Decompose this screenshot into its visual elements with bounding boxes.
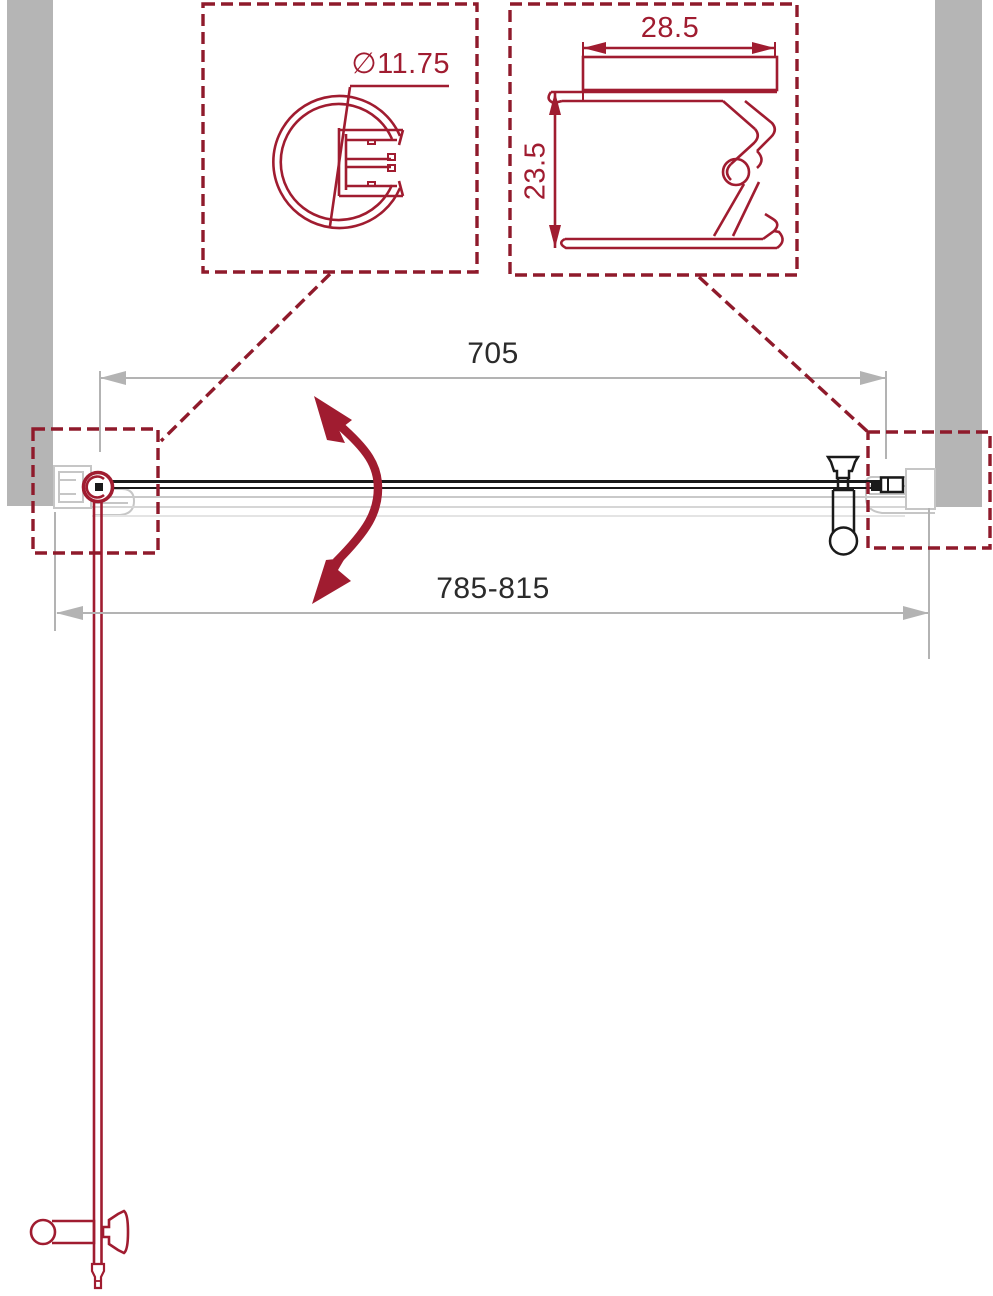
wall-left bbox=[7, 0, 53, 506]
dimension-label-glass-width: 705 bbox=[100, 339, 886, 369]
round-profile-detail bbox=[273, 86, 449, 228]
swing-arc bbox=[312, 396, 378, 604]
dimension-label-profile-diameter: ∅11.75 bbox=[336, 50, 450, 79]
dimension-label-overall-width: 785-815 bbox=[57, 574, 929, 604]
hinge-pivot bbox=[84, 473, 113, 502]
technical-drawing-page: 705 785-815 ∅11.75 28.5 23.5 bbox=[0, 0, 993, 1296]
door-ghost-lines bbox=[92, 497, 905, 516]
wall-profile-detail bbox=[549, 42, 783, 248]
dimension-705 bbox=[100, 371, 886, 459]
door-open-glass bbox=[92, 500, 104, 1288]
drawing-canvas bbox=[0, 0, 993, 1296]
door-handle-closed bbox=[828, 457, 858, 555]
door-handle-open bbox=[31, 1211, 128, 1253]
dimension-label-wall-profile-depth: 23.5 bbox=[522, 142, 551, 200]
door-closed-glass bbox=[92, 478, 903, 493]
dimension-label-wall-profile-width: 28.5 bbox=[610, 14, 730, 43]
